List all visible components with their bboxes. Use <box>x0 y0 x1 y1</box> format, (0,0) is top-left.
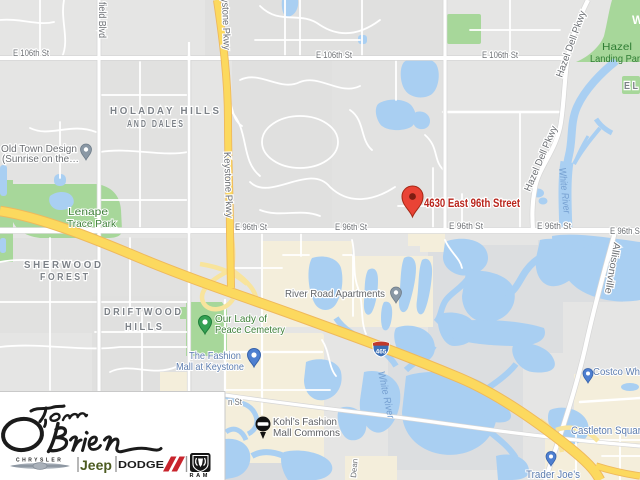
svg-text:465: 465 <box>376 349 387 356</box>
svg-text:ystone Pkwy: ystone Pkwy <box>219 0 232 50</box>
svg-text:Hazel: Hazel <box>602 41 632 53</box>
svg-text:W: W <box>632 13 640 27</box>
svg-text:F O R E S T: F O R E S T <box>40 271 88 283</box>
svg-text:River Road Apartments: River Road Apartments <box>285 288 385 300</box>
svg-text:Jeep: Jeep <box>80 457 112 473</box>
svg-text:DODGE: DODGE <box>118 459 164 471</box>
svg-text:D R I F T W O O D: D R I F T W O O D <box>104 306 181 318</box>
svg-text:Mall at Keystone: Mall at Keystone <box>176 361 244 373</box>
svg-text:Costco Wh: Costco Wh <box>593 366 640 378</box>
svg-text:E 96th St: E 96th St <box>537 221 571 232</box>
svg-text:E 96th St: E 96th St <box>610 226 640 237</box>
svg-text:E 106th St: E 106th St <box>316 50 352 61</box>
svg-text:E 96th St: E 96th St <box>235 222 267 233</box>
svg-text:E 96th St: E 96th St <box>449 221 483 232</box>
svg-text:field Blvd: field Blvd <box>96 2 107 38</box>
svg-text:Landing Par: Landing Par <box>590 53 640 65</box>
svg-text:Castleton Squar: Castleton Squar <box>571 425 640 437</box>
svg-text:Lenape: Lenape <box>68 206 108 218</box>
svg-text:S H E R W O O D: S H E R W O O D <box>24 259 101 271</box>
svg-text:Trader Joe’s: Trader Joe’s <box>526 469 580 480</box>
svg-text:E 106th St: E 106th St <box>13 48 49 59</box>
svg-text:Mall Commons: Mall Commons <box>273 427 340 439</box>
svg-text:Dean: Dean <box>349 458 360 478</box>
svg-text:Keystone Pkwy: Keystone Pkwy <box>221 152 234 218</box>
svg-text:E L: E L <box>624 80 638 92</box>
svg-text:E 106th St: E 106th St <box>482 50 518 61</box>
svg-text:H I L L S: H I L L S <box>125 321 162 333</box>
svg-text:n St: n St <box>228 397 242 408</box>
svg-text:E 96th St: E 96th St <box>335 222 367 233</box>
svg-text:(Sunrise on the…: (Sunrise on the… <box>2 153 79 165</box>
svg-text:Peace Cemetery: Peace Cemetery <box>215 324 286 336</box>
svg-text:4630 East 96th Street: 4630 East 96th Street <box>424 196 520 210</box>
svg-text:RAM: RAM <box>190 473 211 479</box>
svg-text:Trace Park: Trace Park <box>67 218 117 230</box>
svg-text:A N D D A L E S: A N D D A L E S <box>127 118 183 130</box>
svg-text:H O L A D A Y H I L L S: H O L A D A Y H I L L S <box>110 105 219 117</box>
